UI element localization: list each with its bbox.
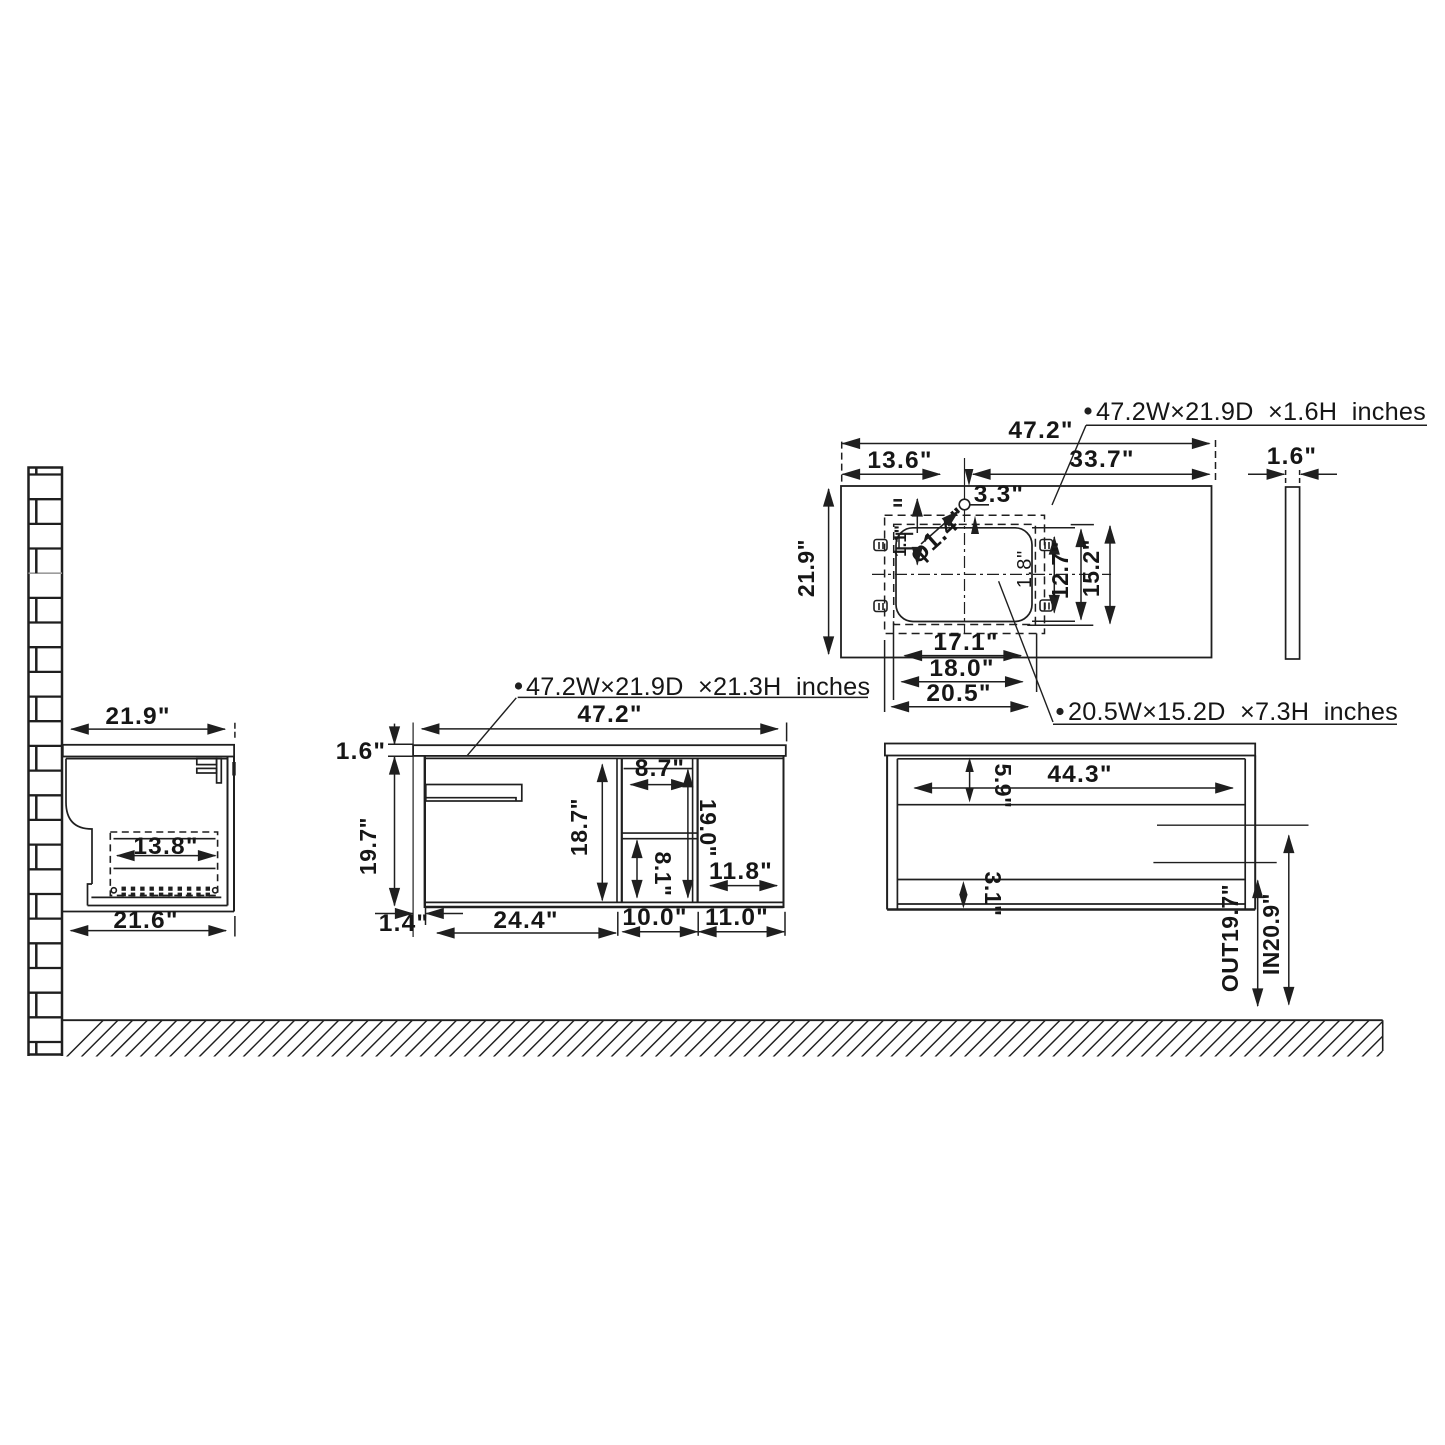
svg-text:3.3": 3.3"	[974, 481, 1024, 508]
svg-text:20.5": 20.5"	[926, 680, 991, 707]
svg-text:47.2": 47.2"	[577, 701, 642, 728]
svg-text:5.9": 5.9"	[990, 764, 1016, 809]
svg-text:18.0": 18.0"	[929, 655, 994, 682]
svg-text:3.1": 3.1"	[980, 872, 1006, 917]
svg-text:21.9": 21.9"	[105, 703, 170, 730]
svg-text:10.0": 10.0"	[622, 904, 687, 931]
svg-text:13.8": 13.8"	[133, 833, 198, 860]
svg-text:1.4": 1.4"	[379, 910, 429, 937]
svg-text:1.6": 1.6"	[1267, 443, 1317, 470]
svg-text:17.1": 17.1"	[933, 629, 998, 656]
svg-text:24.4": 24.4"	[493, 907, 558, 934]
svg-text:IN20.9": IN20.9"	[1258, 893, 1284, 975]
svg-text:18.7": 18.7"	[566, 798, 592, 856]
svg-text:8.1": 8.1"	[650, 852, 676, 897]
svg-text:1.8": 1.8"	[1014, 550, 1036, 588]
svg-text:1.1": 1.1"	[891, 525, 910, 557]
svg-text:1.6": 1.6"	[336, 738, 386, 765]
svg-text:47.2": 47.2"	[1008, 417, 1073, 444]
svg-text:11.0": 11.0"	[705, 904, 769, 931]
svg-text:8.7": 8.7"	[635, 755, 685, 782]
svg-text:13.6": 13.6"	[867, 447, 932, 474]
svg-text:44.3": 44.3"	[1047, 761, 1112, 788]
svg-text:15.2": 15.2"	[1078, 539, 1104, 597]
svg-text:21.6": 21.6"	[113, 907, 178, 934]
svg-text:19.0": 19.0"	[695, 799, 721, 857]
svg-text:20.5W×15.2D ×7.3H inches: 20.5W×15.2D ×7.3H inches	[1068, 698, 1398, 726]
svg-text:11.8": 11.8"	[709, 858, 773, 885]
svg-text:19.7": 19.7"	[355, 817, 381, 875]
svg-text:47.2W×21.9D ×1.6H inches: 47.2W×21.9D ×1.6H inches	[1096, 398, 1426, 426]
svg-text:33.7": 33.7"	[1069, 446, 1134, 473]
svg-text:12.7": 12.7"	[1047, 541, 1073, 599]
svg-text:OUT19.7": OUT19.7"	[1217, 884, 1243, 992]
svg-text:21.9": 21.9"	[793, 539, 819, 597]
